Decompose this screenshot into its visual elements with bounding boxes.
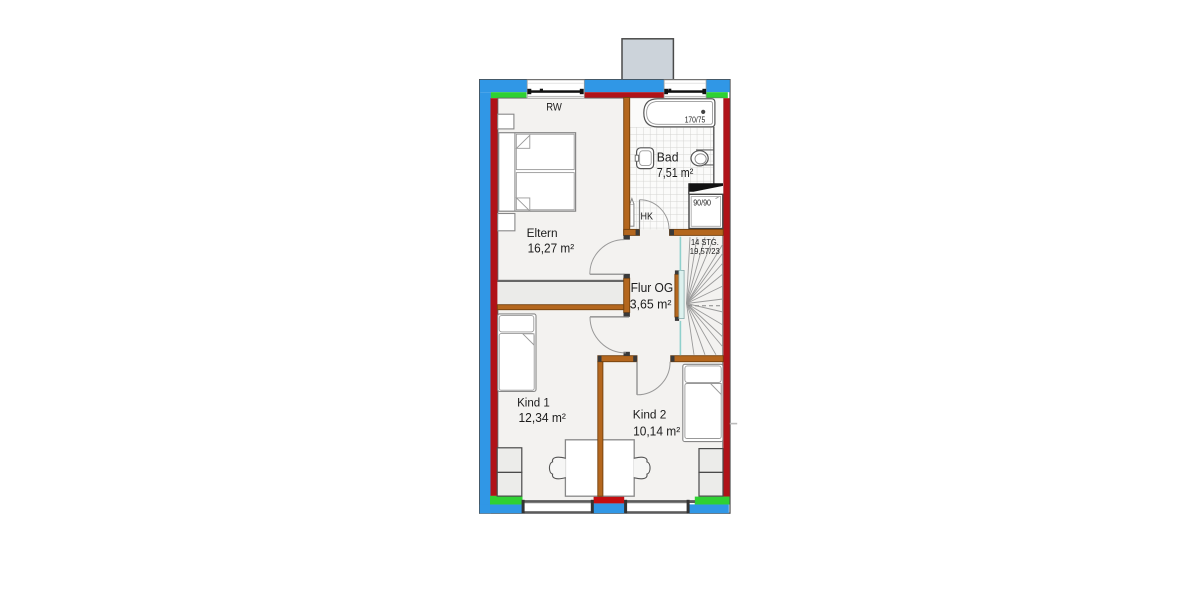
svg-text:170/75: 170/75 <box>685 114 706 124</box>
svg-text:19,57/23: 19,57/23 <box>690 246 720 256</box>
svg-text:Kind 2: Kind 2 <box>633 408 667 422</box>
svg-text:3,65 m²: 3,65 m² <box>630 296 672 311</box>
svg-text:10,14 m²: 10,14 m² <box>633 423 681 438</box>
svg-text:HK: HK <box>641 210 654 222</box>
svg-text:Kind 1: Kind 1 <box>517 396 550 410</box>
svg-text:Bad: Bad <box>657 149 679 164</box>
svg-text:90/90: 90/90 <box>693 198 711 207</box>
svg-text:Eltern: Eltern <box>527 226 558 240</box>
svg-text:12,34 m²: 12,34 m² <box>519 410 567 425</box>
svg-text:7,51 m²: 7,51 m² <box>657 165 694 180</box>
svg-text:RW: RW <box>546 102 562 114</box>
svg-text:Flur OG: Flur OG <box>631 280 674 295</box>
svg-text:16,27 m²: 16,27 m² <box>528 241 575 256</box>
